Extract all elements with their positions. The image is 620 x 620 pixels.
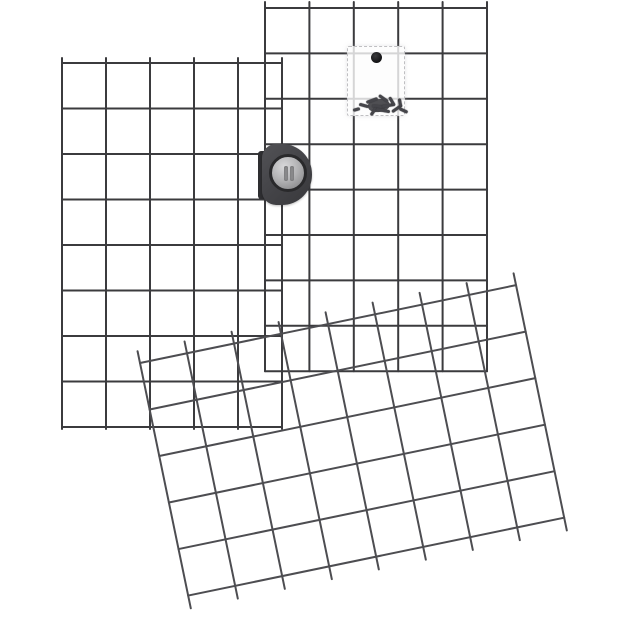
screw [353, 107, 361, 112]
knob-slot [284, 166, 288, 181]
wire [179, 471, 555, 549]
wire [169, 425, 545, 503]
bag-hang-hole [371, 52, 382, 63]
wire [326, 312, 379, 569]
grid-panel-left [62, 58, 282, 429]
product-photo-canvas [0, 0, 620, 620]
wire [188, 518, 564, 596]
wire [514, 273, 567, 530]
knob-slot [290, 166, 294, 181]
wire [138, 351, 191, 608]
wire [140, 285, 516, 363]
screw [398, 98, 402, 106]
wire [159, 378, 535, 456]
hardware-bag [347, 46, 405, 116]
grid-panel-tilted [138, 273, 567, 608]
panel-connector-clip [256, 140, 314, 208]
wire [279, 322, 332, 579]
wire [420, 293, 473, 550]
wire [185, 342, 238, 599]
clip-knob [269, 154, 307, 192]
wire-panels-layer [0, 0, 620, 620]
wire [467, 283, 520, 540]
